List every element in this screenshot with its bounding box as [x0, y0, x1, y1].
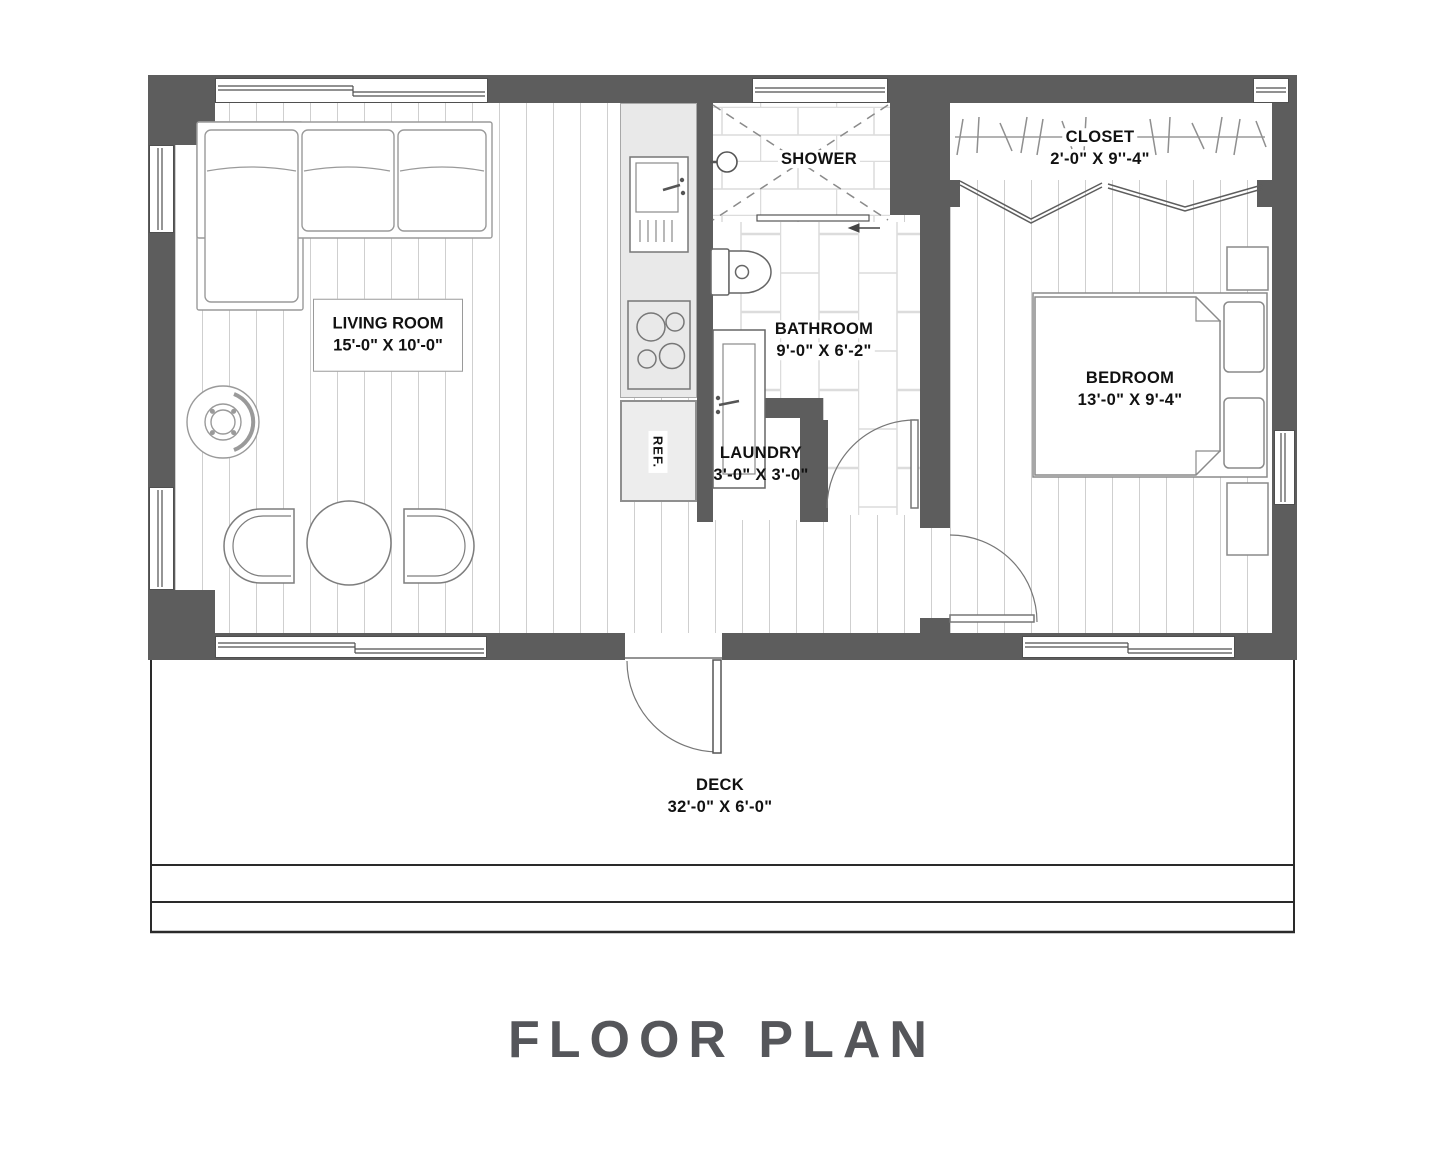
- room-dims: 13'-0" X 9'-4": [1078, 390, 1183, 412]
- room-name: CLOSET: [1063, 128, 1138, 146]
- room-dims: 32'-0" X 6'-0": [668, 797, 773, 819]
- wall-segment: [920, 618, 950, 633]
- window: [149, 145, 174, 233]
- room-name: BATHROOM: [772, 320, 876, 338]
- floor-plan-title: FLOOR PLAN: [508, 1010, 936, 1070]
- living-room-label: LIVING ROOM 15'-0" X 10'-0": [313, 299, 463, 372]
- window: [1274, 430, 1295, 505]
- bathroom-label: BATHROOM 9'-0" X 6'-2": [772, 319, 876, 363]
- bedroom-label: BEDROOM 13'-0" X 9'-4": [1078, 368, 1183, 412]
- closet-door-jamb: [945, 180, 960, 207]
- room-name: DECK: [668, 775, 773, 797]
- deck-door: [625, 658, 722, 753]
- closet-label: CLOSET 2'-0" X 9''-4": [1047, 127, 1153, 171]
- deck-door-opening: [625, 633, 722, 660]
- wall-segment: [920, 180, 950, 528]
- window: [149, 487, 174, 590]
- window: [215, 636, 487, 658]
- closet-door-jamb: [1257, 180, 1272, 207]
- window: [1253, 78, 1289, 103]
- window: [752, 78, 888, 103]
- window: [215, 78, 488, 103]
- wall-segment: [1272, 75, 1297, 660]
- room-dims: 9'-0" X 6'-2": [773, 342, 874, 360]
- shower-label: SHOWER: [778, 149, 860, 171]
- wall-corner: [148, 75, 215, 145]
- deck-label: DECK 32'-0" X 6'-0": [668, 775, 773, 819]
- wall-corner: [148, 590, 215, 660]
- laundry-label: LAUNDRY 3'-0" X 3'-0": [713, 443, 808, 487]
- living-area-floor: [175, 103, 950, 633]
- refrigerator-label: REF.: [649, 431, 668, 473]
- room-name: BEDROOM: [1078, 368, 1183, 390]
- room-name: SHOWER: [778, 150, 860, 168]
- kitchen-counter: [620, 103, 697, 398]
- room-dims: 3'-0" X 3'-0": [713, 465, 808, 487]
- window: [1022, 636, 1235, 658]
- wall-segment: [697, 398, 823, 420]
- room-dims: 15'-0" X 10'-0": [320, 335, 456, 357]
- room-name: LIVING ROOM: [320, 313, 456, 335]
- room-dims: 2'-0" X 9''-4": [1047, 150, 1153, 168]
- floor-plan-canvas: LIVING ROOM 15'-0" X 10'-0" SHOWER CLOSE…: [0, 0, 1445, 1156]
- wall-segment: [697, 103, 713, 522]
- room-name: LAUNDRY: [713, 443, 808, 465]
